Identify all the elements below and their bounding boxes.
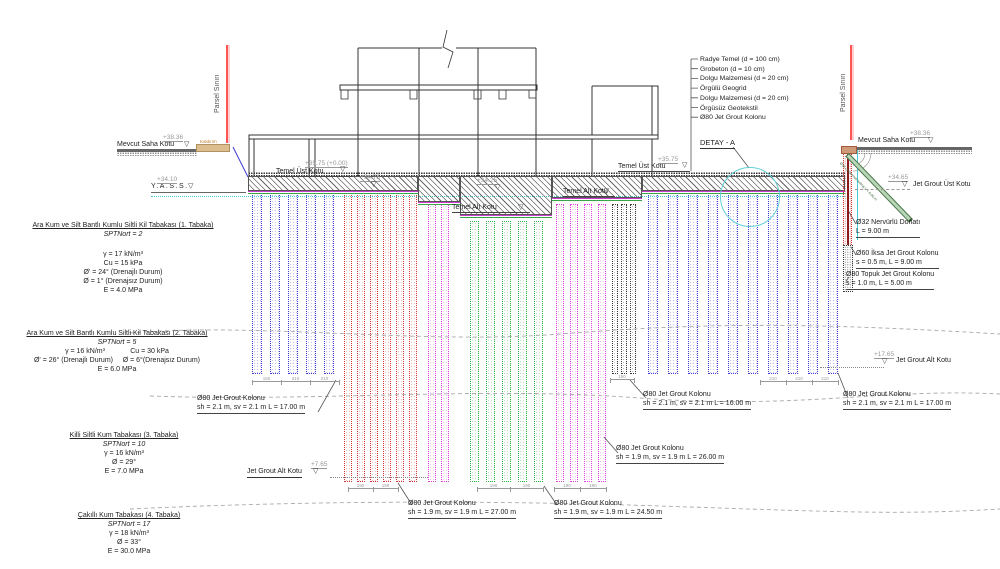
legend: Radye Temel (d = 100 cm)Grobeton (d = 10… [700, 55, 789, 123]
wall-label-iksa: Ø60 İksa Jet Grout Kolonu s = 0.5 m, L =… [856, 250, 939, 269]
column-label-green: Ø80 Jet Grout Kolonu sh = 1.9 m, sv = 1.… [554, 500, 662, 519]
temel-alt-right-label: Temel Alt Kotu [563, 188, 608, 196]
dimension-line: 150 [610, 379, 634, 384]
level-marker-icon: ▽ [313, 468, 318, 475]
soil-prop: γ = 16 kN/m³ [56, 449, 192, 458]
dimension-tick [543, 487, 544, 492]
level-marker-icon: ▽ [604, 188, 609, 195]
soil-layer-4: Çakıllı Kum Tabakası (4. Tabaka) SPTNort… [68, 511, 190, 556]
level-marker-icon: ▽ [518, 204, 523, 211]
mevcut-saha-right-label: Mevcut Saha Kotu [858, 137, 915, 145]
soil-prop: Ø' = 26° (Drenajlı Durum) Ø = 6°(Drenajs… [6, 356, 228, 365]
column-label-spec: sh = 2.1 m, sv = 2.1 m L = 16.00 m [643, 400, 751, 409]
dimension-tick [510, 487, 511, 492]
dimension-tick [580, 487, 581, 492]
soil-prop: γ = 17 kN/m³ [10, 250, 236, 259]
ground-hatch-right [853, 150, 972, 154]
marker-underline [452, 212, 530, 213]
dimension-value: 210 [769, 376, 777, 381]
level-marker-icon: ▽ [340, 166, 345, 173]
legend-item: Örgüsüz Geotekstil [700, 104, 789, 114]
ground-hatch-left [117, 152, 197, 156]
legend-item: Örgülü Geogrid [700, 84, 789, 94]
dimension-line: 210210210 [760, 381, 838, 386]
soil-layer-props: γ = 17 kN/m³Cu = 15 kPaØ' = 24° (Drenajl… [10, 250, 236, 295]
jet-grout-ust-line [855, 189, 910, 190]
column-label-spec: sh = 1.9 m, sv = 1.9 m L = 27.00 m [408, 509, 516, 518]
soil-prop: Ø = 33° [68, 538, 190, 547]
wall-label-title: Ø60 İksa Jet Grout Kolonu [856, 250, 939, 259]
detail-a-circle [720, 167, 780, 227]
dimension-value: 150 [263, 376, 271, 381]
column-label-spec: sh = 2.1 m, sv = 2.1 m L = 17.00 m [197, 404, 305, 413]
temel-alt-center-label: Temel Alt Kotu [452, 204, 497, 212]
marker-underline [618, 171, 690, 172]
legend-item: Dolgu Malzemesi (d = 20 cm) [700, 74, 789, 84]
dimension-value: 210 [292, 376, 300, 381]
dimension-tick [348, 487, 349, 492]
soil-prop: E = 30.0 MPa [68, 547, 190, 556]
soil-prop: E = 6.0 MPa [6, 365, 228, 374]
detail-a-label: DETAY - A [700, 139, 735, 149]
soil-layer-title: Çakıllı Kum Tabakası (4. Tabaka) [68, 511, 190, 520]
wall-label-spec: s = 0.5 m, L = 9.00 m [856, 259, 939, 268]
level-marker-icon: ▽ [882, 358, 887, 365]
soil-layer-spt: SPTNort = 10 [56, 440, 192, 449]
dimension-tick [606, 487, 607, 492]
dimension-value: 190 [357, 483, 365, 488]
parcel-boundary-line-left [226, 45, 228, 143]
wall-label-spec: s = 1.0 m, L = 5.00 m [846, 280, 934, 289]
soil-layer-title: Ara Kum ve Silt Bantlı Kumlu Siltli Kil … [6, 329, 228, 338]
wall-label-title: Ø80 Topuk Jet Grout Kolonu [846, 271, 934, 280]
dimension-tick [760, 380, 761, 385]
dimension-value: 210 [795, 376, 803, 381]
yass-elev: +34.10 [157, 176, 177, 184]
dimension-value: 190 [382, 483, 390, 488]
dimension-value: 190 [523, 483, 531, 488]
parcel-boundary-line-right [850, 45, 852, 140]
temel-ust-right-label: Temel Üst Kotu [618, 163, 665, 171]
jet-grout-alt-left-label: Jet Grout Alt Kotu [247, 468, 302, 478]
dimension-tick [398, 487, 399, 492]
soil-layer-title: Ara Kum ve Silt Bantlı Kumlu Siltli Kil … [10, 221, 236, 230]
level-marker-icon: ▽ [902, 181, 907, 188]
marker-underline [563, 196, 615, 197]
level-marker-icon: ▽ [184, 141, 189, 148]
column-label-right: Ø80 Jet Grout Kolonu sh = 2.1 m, sv = 2.… [843, 391, 951, 410]
soil-prop: E = 4.0 MPa [10, 286, 236, 295]
dimension-tick [610, 378, 611, 383]
dimension-line: 150210210 [252, 381, 339, 386]
dimension-line: 190190 [554, 488, 606, 493]
soil-layer-2: Ara Kum ve Silt Bantlı Kumlu Siltli Kil … [6, 329, 228, 374]
temel-ust-left-label: Temel Üst Kotu [276, 168, 323, 176]
parcel-boundary-label-left: Parsel Sınırı [214, 74, 221, 113]
yass-line [151, 192, 246, 193]
soil-layer-props: γ = 16 kN/m³ Cu = 30 kPaØ' = 26° (Drenaj… [6, 347, 228, 374]
soil-layer-props: γ = 16 kN/m³Ø = 29°E = 7.0 MPa [56, 449, 192, 476]
soil-layer-title: Killi Siltli Kum Tabakası (3. Tabaka) [56, 431, 192, 440]
dimension-tick [252, 380, 253, 385]
column-label-title: Ø80 Jet Grout Kolonu [554, 500, 662, 509]
soil-prop: Cu = 15 kPa [10, 259, 236, 268]
wall-label-topuk: Ø80 Topuk Jet Grout Kolonu s = 1.0 m, L … [846, 271, 934, 290]
column-label-spec: sh = 2.1 m, sv = 2.1 m L = 17.00 m [843, 400, 951, 409]
soil-prop: Ø = 1° (Drenajsız Durum) [10, 277, 236, 286]
column-label-title: Ø80 Jet Grout Kolonu [643, 391, 751, 400]
column-label-left: Ø80 Jet Grout Kolonu sh = 2.1 m, sv = 2.… [197, 395, 305, 414]
soil-layer-1: Ara Kum ve Silt Bantlı Kumlu Siltli Kil … [10, 221, 236, 295]
dimension-value: 190 [589, 483, 597, 488]
temel-ust-right-elev: +35.75 [658, 156, 678, 164]
wall-label-donati: Ø32 Nervürlü Donatı L = 9.00 m [856, 219, 920, 238]
parcel-boundary-label-right: Parsel Sınırı [840, 73, 847, 112]
soil-layer-spt: SPTNort = 17 [68, 520, 190, 529]
soil-prop: Ø' = 24° (Drenajlı Durum) [10, 268, 236, 277]
column-label-title: Ø80 Jet Grout Kolonu [843, 391, 951, 400]
legend-item: Radye Temel (d = 100 cm) [700, 55, 789, 65]
soil-prop: E = 7.0 MPa [56, 467, 192, 476]
dimension-value: 210 [821, 376, 829, 381]
dimension-value: 210 [321, 376, 329, 381]
dimension-line: 190190 [477, 488, 543, 493]
mevcut-saha-left-label: Mevcut Saha Kotu [117, 141, 174, 149]
column-label-title: Ø80 Jet Grout Kolonu [408, 500, 516, 509]
jet-grout-alt-right-line [820, 367, 884, 368]
dimension-line: 190190 [348, 488, 398, 493]
column-label-red: Ø80 Jet Grout Kolonu sh = 1.9 m, sv = 1.… [408, 500, 516, 519]
sidewalk-label: Kaldırım [200, 138, 217, 146]
dimension-tick [812, 380, 813, 385]
dimension-tick [281, 380, 282, 385]
marker-underline [276, 176, 352, 177]
dimension-tick [339, 380, 340, 385]
legend-item: Ø80 Jet Grout Kolonu [700, 113, 789, 123]
dimension-tick [477, 487, 478, 492]
dimension-tick [554, 487, 555, 492]
geotechnical-section-drawing: Parsel Sınırı Parsel Sınırı Radye Temel … [0, 0, 1000, 569]
soil-layer-spt: SPTNort = 5 [6, 338, 228, 347]
soil-layer-props: γ = 18 kN/m³Ø = 33°E = 30.0 MPa [68, 529, 190, 556]
column-label-spec: sh = 1.9 m, sv = 1.9 m L = 26.00 m [616, 454, 724, 463]
column-label-spec: sh = 1.9 m, sv = 1.9 m L = 24.50 m [554, 509, 662, 518]
dimension-tick [310, 380, 311, 385]
column-label-mid-right: Ø80 Jet Grout Kolonu sh = 2.1 m, sv = 2.… [643, 391, 751, 410]
level-marker-icon: ▽ [371, 181, 376, 188]
dimension-tick [786, 380, 787, 385]
soil-layer-spt: SPTNort = 2 [10, 230, 236, 239]
nervurlu-donati-bar [847, 150, 849, 245]
yass-label: Y.A.S.S. [151, 183, 189, 191]
mevcut-saha-left-elev: +38.36 [163, 134, 183, 142]
legend-item: Dolgu Malzemesi (d = 20 cm) [700, 94, 789, 104]
soil-layer-3: Killi Siltli Kum Tabakası (3. Tabaka) SP… [56, 431, 192, 476]
soil-prop: γ = 18 kN/m³ [68, 529, 190, 538]
column-label-magenta: Ø80 Jet Grout Kolonu sh = 1.9 m, sv = 1.… [616, 445, 724, 464]
level-marker-icon: ▽ [188, 183, 193, 190]
jet-grout-ust-label: Jet Grout Üst Kotu [913, 181, 971, 189]
wall-label-spec: L = 9.00 m [856, 228, 920, 237]
level-marker-icon: ▽ [495, 184, 500, 191]
level-marker-icon: ▽ [682, 162, 687, 169]
column-label-title: Ø80 Jet Grout Kolonu [616, 445, 724, 454]
column-label-title: Ø80 Jet Grout Kolonu [197, 395, 305, 404]
jet-grout-alt-right-label: Jet Grout Alt Kotu [896, 357, 951, 365]
legend-item: Grobeton (d = 10 cm) [700, 65, 789, 75]
dimension-tick [634, 378, 635, 383]
soil-prop: Ø = 29° [56, 458, 192, 467]
soil-prop: γ = 16 kN/m³ Cu = 30 kPa [6, 347, 228, 356]
dimension-value: 150 [618, 374, 626, 379]
dimension-value: 190 [563, 483, 571, 488]
dimension-value: 190 [490, 483, 498, 488]
dimension-tick [838, 380, 839, 385]
wall-label-title: Ø32 Nervürlü Donatı [856, 219, 920, 228]
jet-grout-alt-left-line [330, 477, 428, 478]
level-marker-icon: ▽ [928, 137, 933, 144]
dimension-tick [373, 487, 374, 492]
